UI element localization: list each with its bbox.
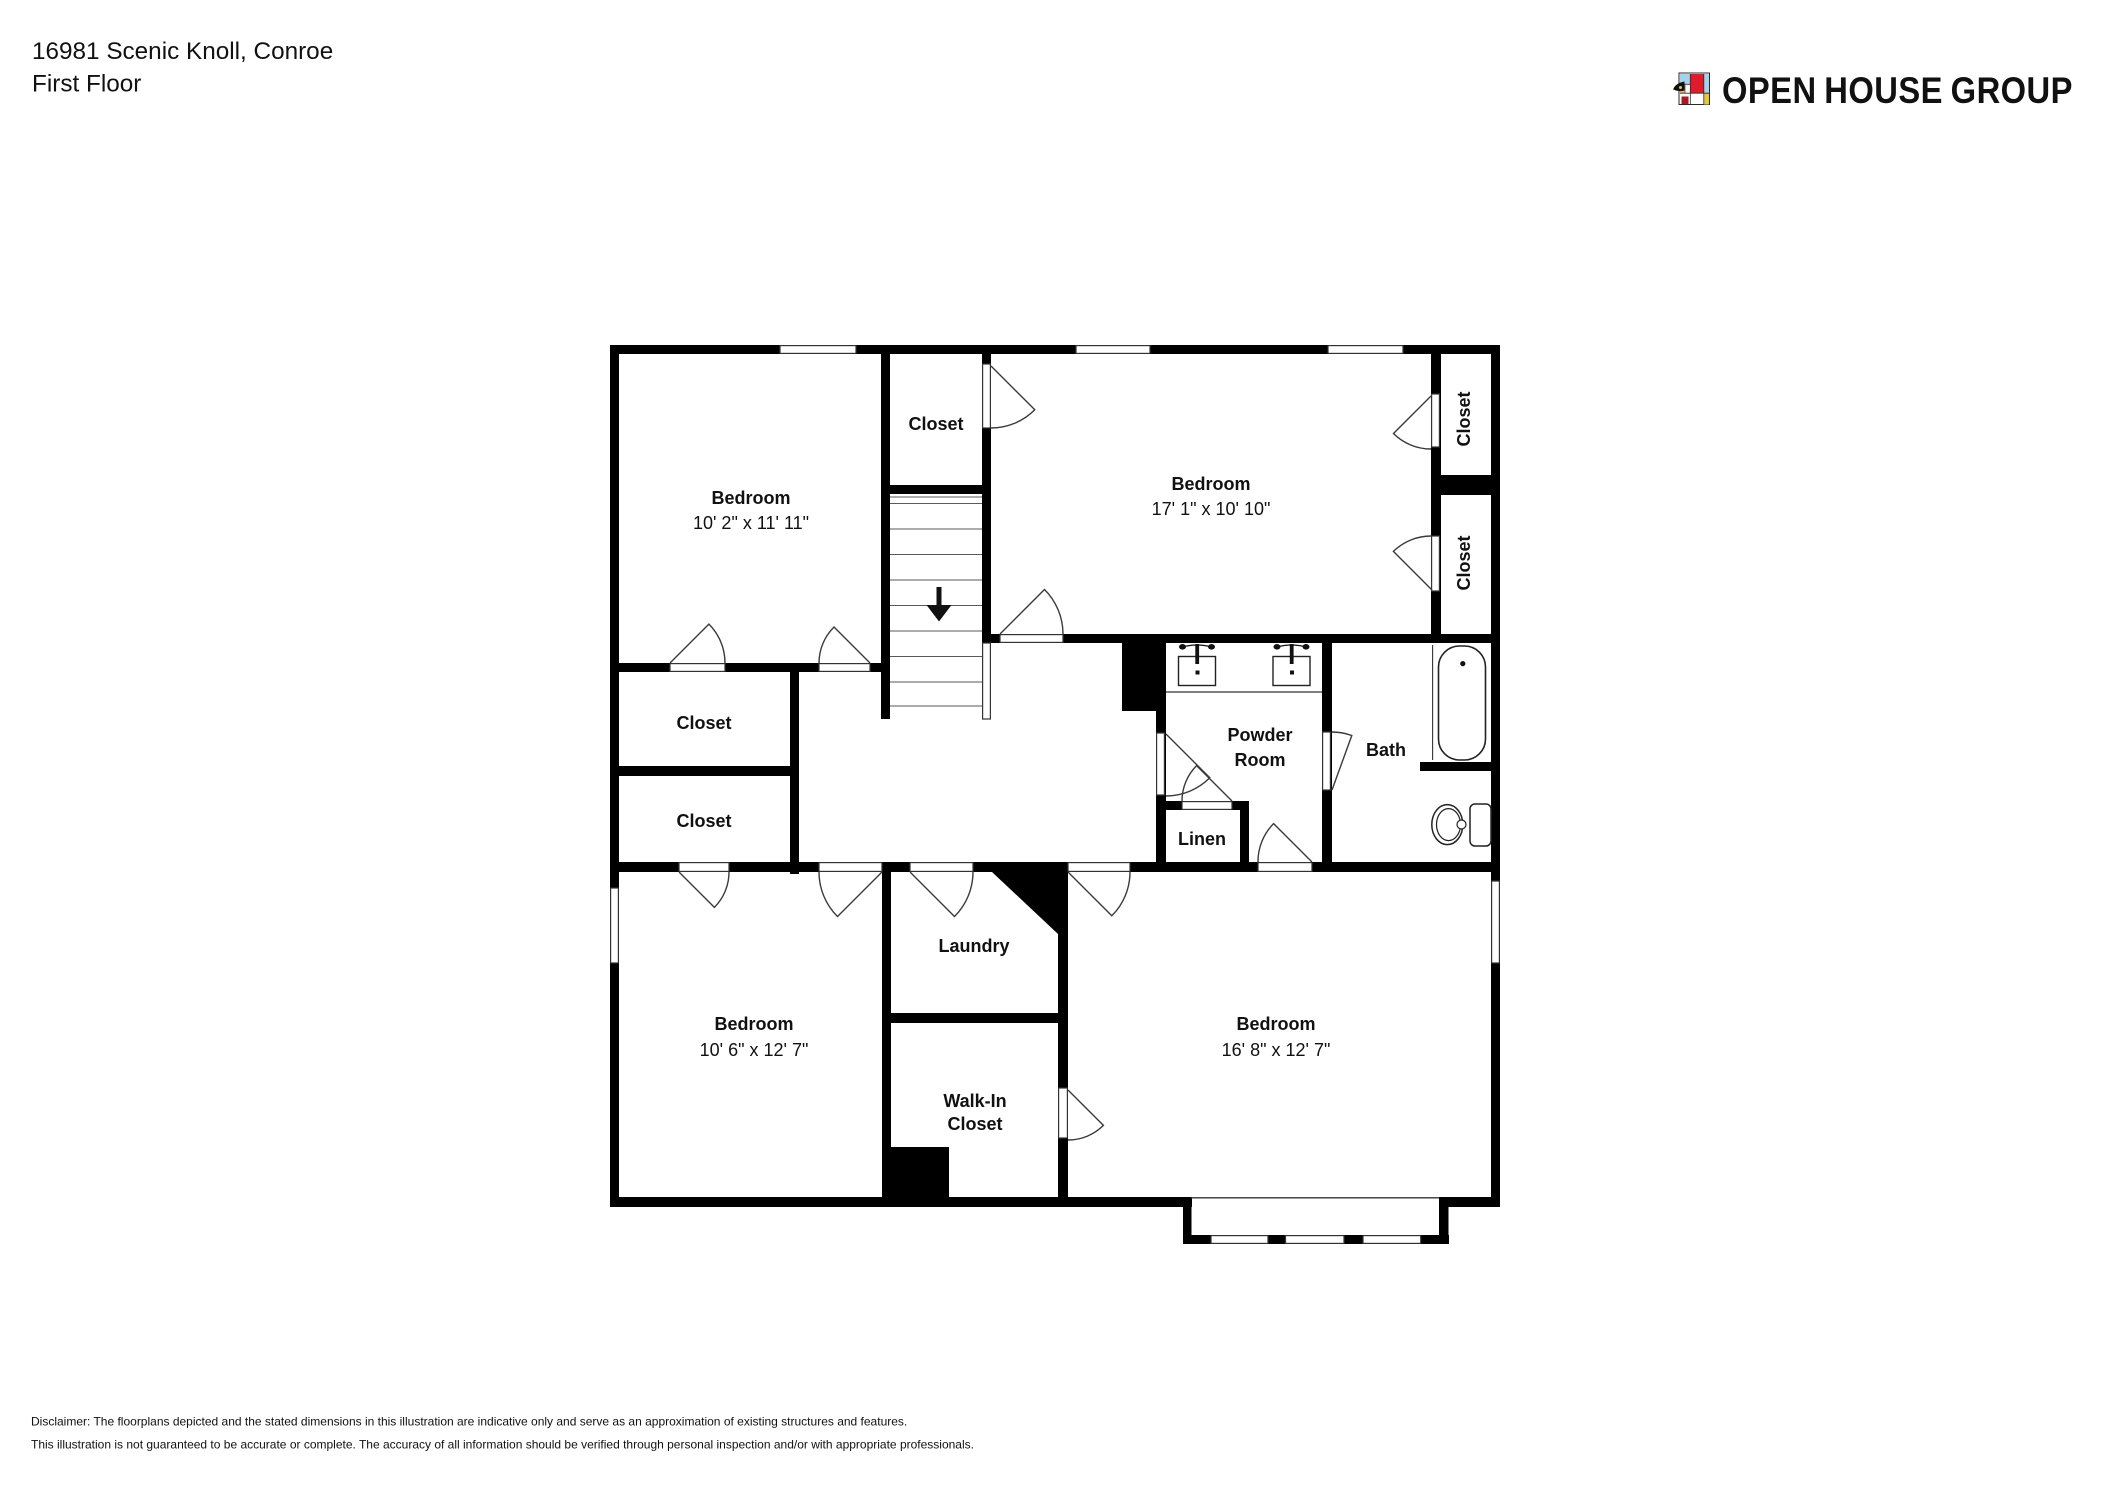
svg-text:Closet: Closet [908, 414, 963, 434]
svg-text:Bedroom: Bedroom [711, 488, 790, 508]
svg-text:Bath: Bath [1366, 740, 1406, 760]
svg-text:16' 8" x 12' 7": 16' 8" x 12' 7" [1222, 1040, 1331, 1060]
svg-text:Bedroom: Bedroom [714, 1014, 793, 1034]
svg-text:First Floor: First Floor [32, 71, 141, 98]
svg-text:Disclaimer: The floorplans dep: Disclaimer: The floorplans depicted and … [31, 1415, 907, 1429]
svg-text:10' 6" x 12' 7": 10' 6" x 12' 7" [700, 1040, 809, 1060]
svg-text:Walk-In: Walk-In [943, 1091, 1006, 1111]
svg-text:17' 1" x 10' 10": 17' 1" x 10' 10" [1152, 499, 1271, 519]
svg-text:OPEN HOUSE GROUP: OPEN HOUSE GROUP [1722, 70, 2073, 111]
svg-text:Bedroom: Bedroom [1171, 474, 1250, 494]
svg-text:Linen: Linen [1178, 829, 1226, 849]
svg-text:10' 2" x 11' 11": 10' 2" x 11' 11" [693, 513, 809, 533]
svg-text:Closet: Closet [947, 1114, 1002, 1134]
svg-text:Closet: Closet [1454, 391, 1474, 446]
svg-text:Closet: Closet [676, 713, 731, 733]
svg-text:Laundry: Laundry [938, 936, 1009, 956]
svg-text:Closet: Closet [676, 811, 731, 831]
svg-text:This illustration is not guara: This illustration is not guaranteed to b… [31, 1438, 974, 1452]
svg-text:Powder: Powder [1227, 725, 1292, 745]
svg-text:Bedroom: Bedroom [1236, 1014, 1315, 1034]
svg-text:Room: Room [1235, 750, 1286, 770]
svg-text:16981 Scenic Knoll, Conroe: 16981 Scenic Knoll, Conroe [32, 38, 333, 65]
svg-text:Closet: Closet [1454, 535, 1474, 590]
